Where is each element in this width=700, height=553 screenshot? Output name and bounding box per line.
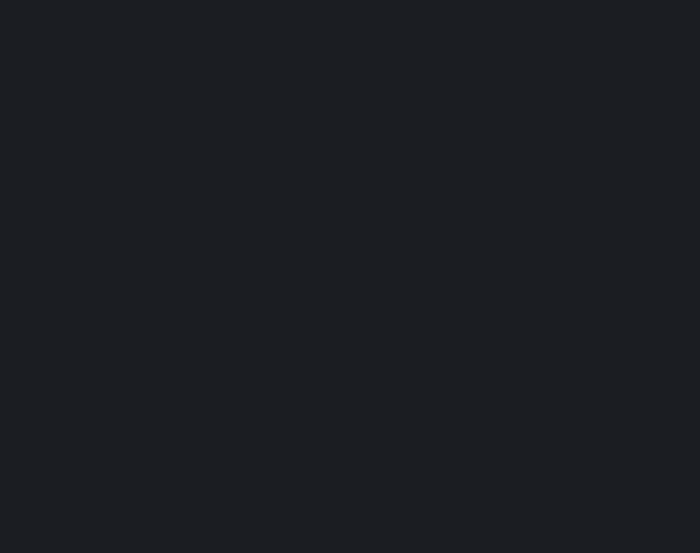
blank-dark-screen	[0, 0, 700, 553]
